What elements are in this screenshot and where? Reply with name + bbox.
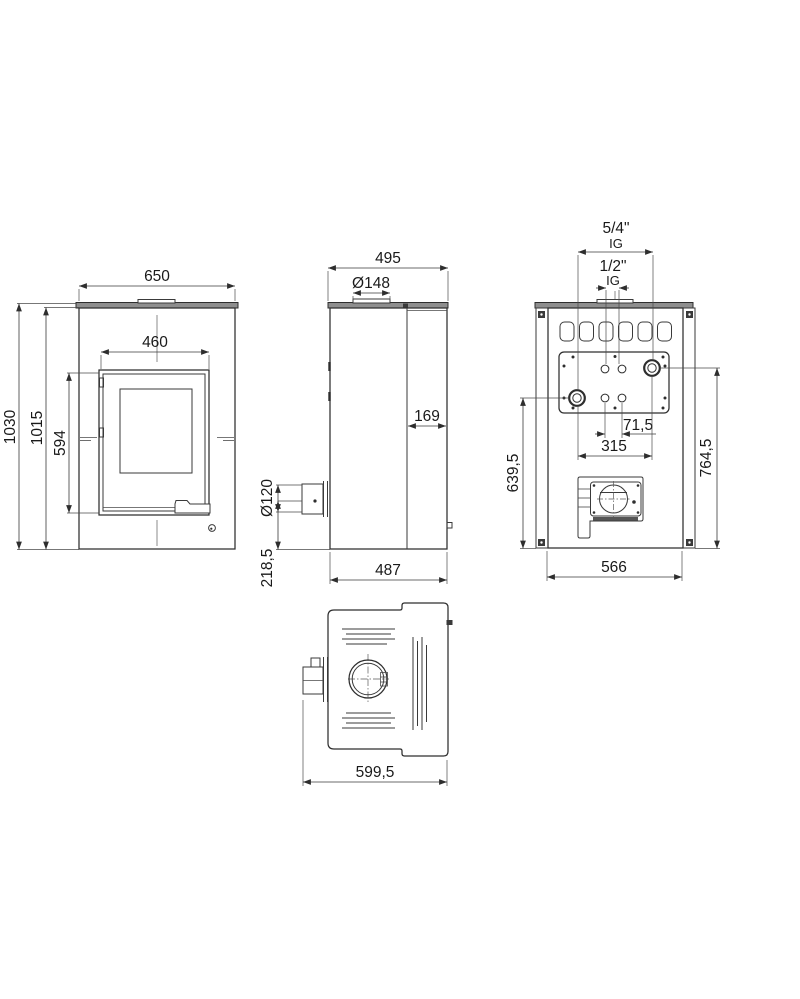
dim-label-front-height-overall: 1030 (2, 409, 19, 444)
top-view-outline (328, 603, 448, 756)
dim-label-conn-small-spacing: 71,5 (623, 417, 653, 434)
front-flue-collar (138, 300, 175, 304)
dim-label-front-height-body: 1015 (29, 411, 46, 445)
back-view: 5/4" IG 1/2" IG 71,5 315 639,5 764,5 (505, 220, 720, 581)
dim-label-conn-height-right: 764,5 (698, 439, 715, 478)
dim-label-conn-large: 5/4" (602, 220, 629, 237)
dim-label-side-flue-diameter: Ø148 (352, 275, 390, 292)
side-body (330, 308, 447, 549)
dim-label-side-rear-depth: 169 (414, 408, 440, 425)
dim-label-back-width: 566 (601, 559, 627, 576)
dim-label-front-door-width: 460 (142, 334, 168, 351)
dim-label-side-rear-flue-diameter: Ø120 (259, 479, 276, 517)
top-rear-outlet-stub (311, 658, 320, 667)
back-right-strip (683, 308, 695, 548)
side-rear-flue-outlet (302, 484, 323, 514)
dim-label-side-depth-bottom: 487 (375, 562, 401, 579)
front-view: 650 460 1030 1015 594 (2, 268, 238, 550)
dim-label-top-depth-overall: 599,5 (356, 764, 395, 781)
stove-dimension-drawing: 650 460 1030 1015 594 (0, 0, 800, 999)
dim-label-conn-large-spacing: 315 (601, 438, 627, 455)
top-view-clip (447, 620, 453, 625)
back-flue-collar (597, 300, 633, 304)
side-flue-collar (353, 299, 390, 303)
dim-label-side-rear-flue-height: 218,5 (259, 549, 276, 588)
dim-label-conn-large-thread: IG (609, 236, 623, 251)
dim-label-front-door-height: 594 (52, 430, 69, 456)
dim-label-front-width-top: 650 (144, 268, 170, 285)
top-view: 599,5 (303, 603, 453, 786)
side-bracket-clip (447, 523, 452, 529)
dim-label-conn-height-left: 639,5 (505, 454, 522, 493)
side-view: 495 Ø148 169 Ø120 218,5 487 (259, 250, 452, 587)
back-left-strip (536, 308, 548, 548)
technical-drawing-page: 650 460 1030 1015 594 (0, 0, 800, 999)
dim-label-conn-small-thread: IG (606, 273, 620, 288)
dim-label-side-depth-top: 495 (375, 250, 401, 267)
